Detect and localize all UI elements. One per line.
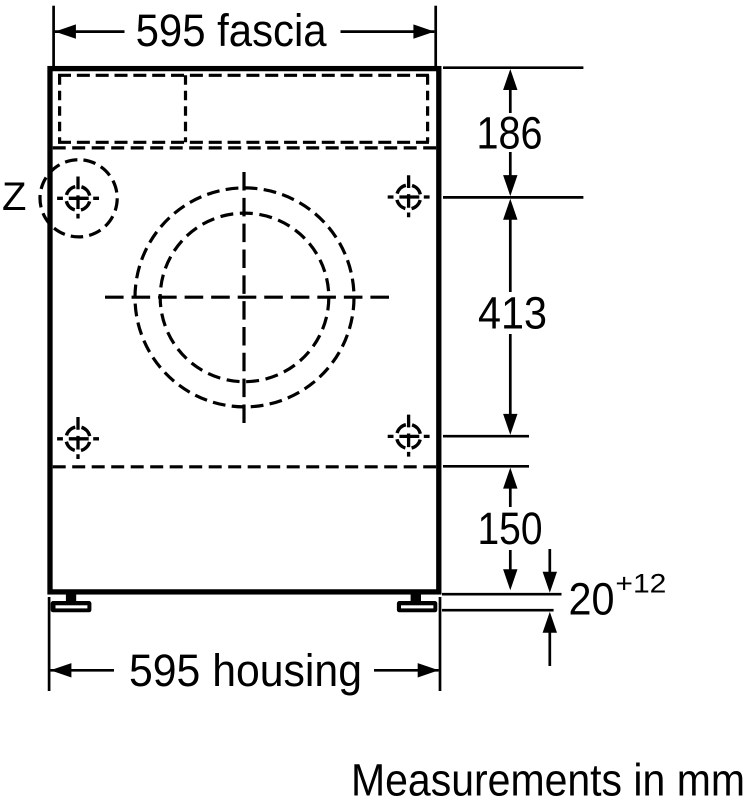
svg-text:Z: Z	[2, 175, 26, 219]
svg-text:Measurements in mm: Measurements in mm	[351, 755, 745, 800]
svg-text:20: 20	[569, 574, 615, 625]
svg-text:150: 150	[478, 503, 543, 554]
svg-text:595 housing: 595 housing	[129, 645, 362, 696]
svg-text:186: 186	[477, 108, 543, 159]
svg-text:595 fascia: 595 fascia	[136, 5, 328, 56]
svg-text:413: 413	[478, 287, 547, 338]
svg-text:+12: +12	[615, 568, 666, 598]
